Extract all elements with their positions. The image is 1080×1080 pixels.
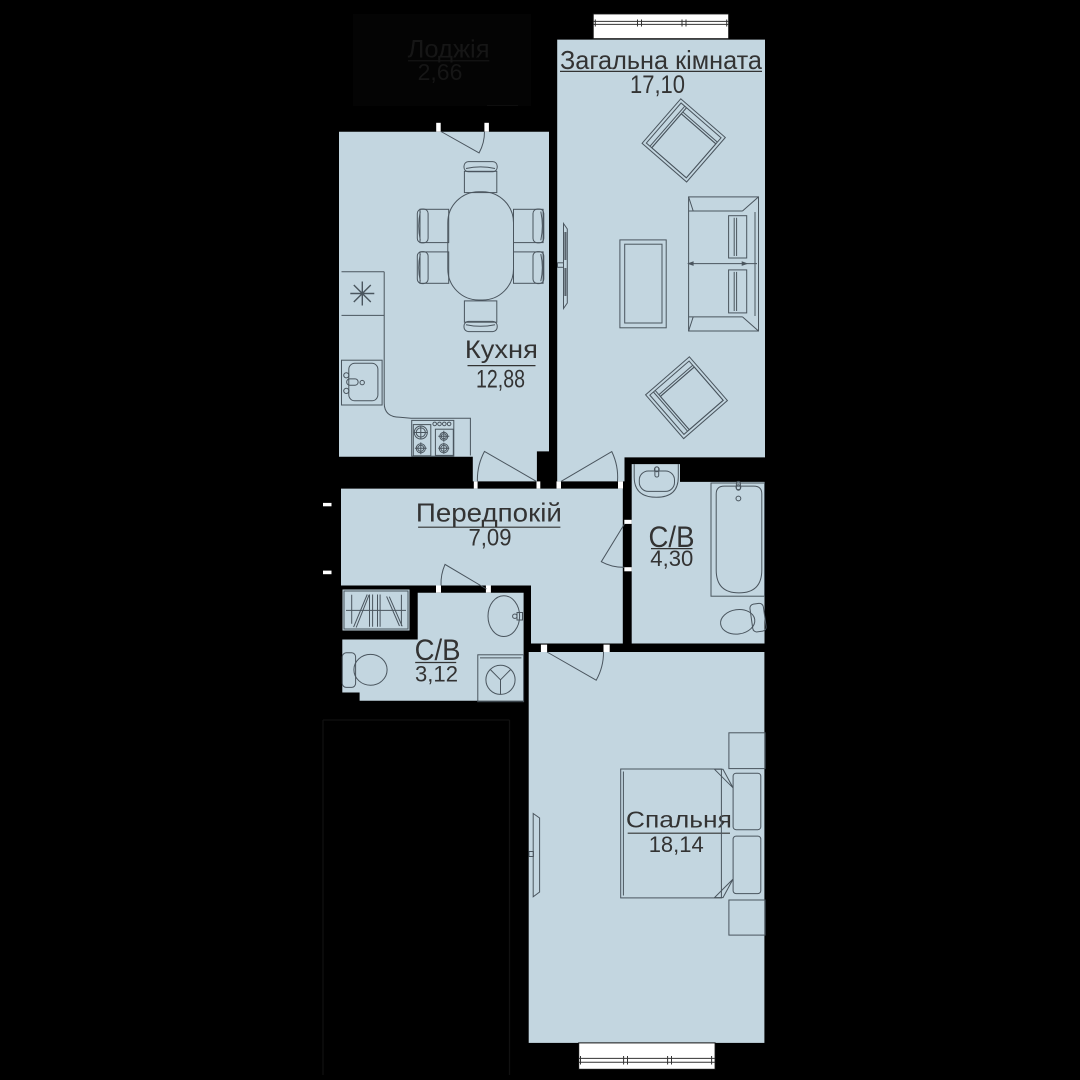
svg-text:18,14: 18,14 [649, 832, 704, 857]
svg-text:7,09: 7,09 [469, 525, 512, 552]
svg-text:2,66: 2,66 [418, 59, 463, 85]
svg-text:Спальня: Спальня [626, 807, 732, 833]
svg-text:Кухня: Кухня [465, 336, 538, 364]
svg-text:Передпокій: Передпокій [416, 498, 562, 528]
svg-text:12,88: 12,88 [476, 365, 525, 393]
svg-text:3,12: 3,12 [415, 662, 458, 687]
svg-text:17,10: 17,10 [630, 71, 685, 99]
svg-text:4,30: 4,30 [650, 546, 693, 571]
